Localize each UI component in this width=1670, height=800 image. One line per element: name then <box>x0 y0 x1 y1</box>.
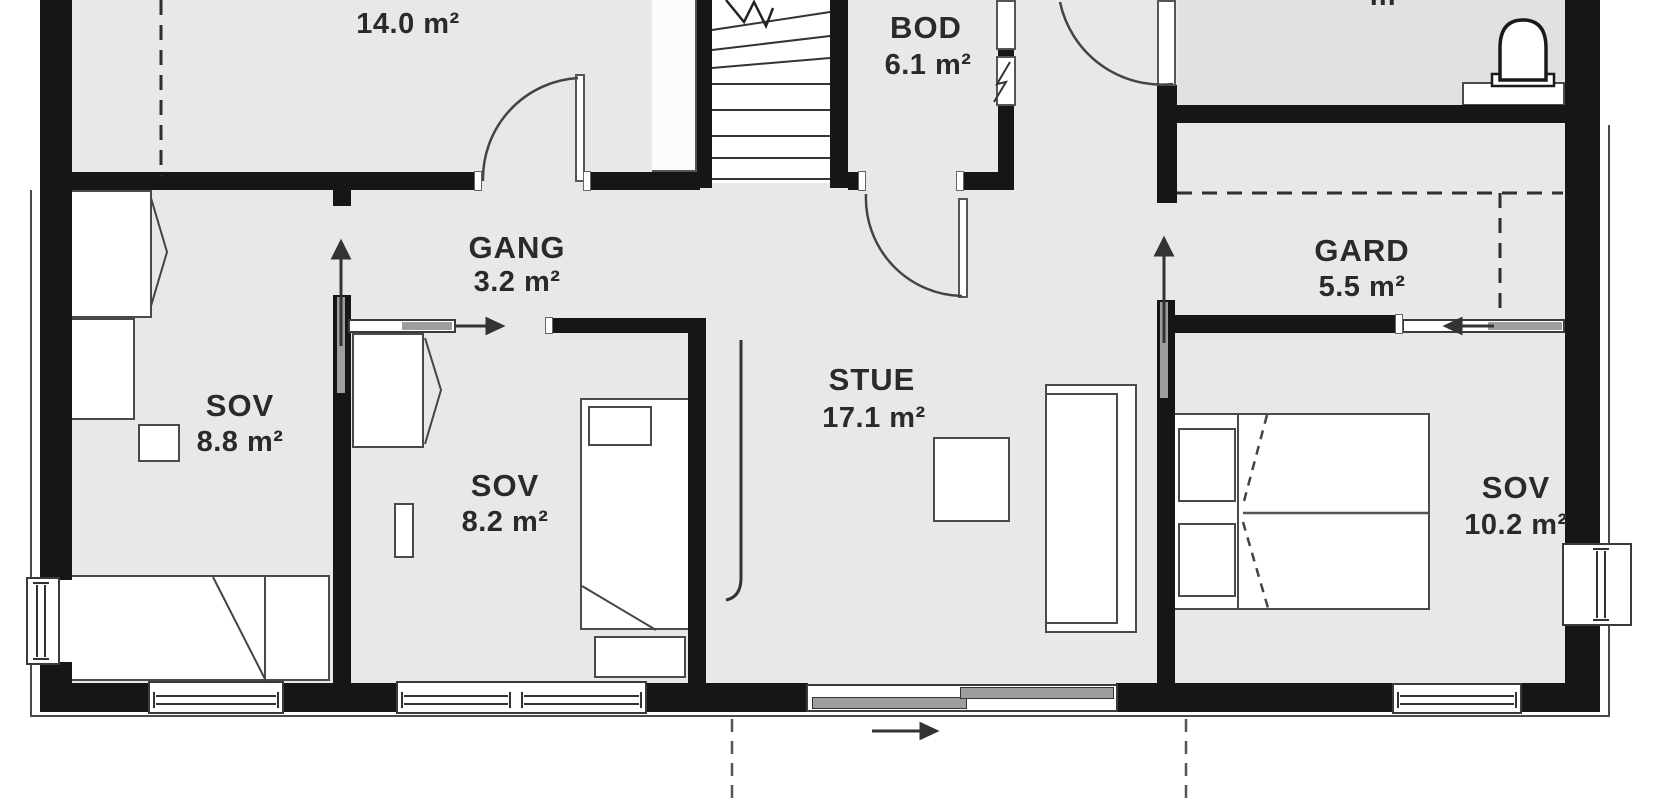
room-label-gard: GARD <box>1314 233 1409 269</box>
pocket-door-sov88-panel <box>337 297 345 393</box>
pillow-sov102-bottom <box>1178 523 1236 597</box>
room-area-gard: 5.5 m² <box>1319 271 1406 304</box>
wall-bath-west <box>1157 85 1177 203</box>
foundation-line-right <box>1608 125 1610 717</box>
bed-sov82-footboard <box>594 636 686 678</box>
bath-counter <box>1462 82 1565 106</box>
outer-wall-bottom-3 <box>643 683 808 712</box>
pocket-door-sov102-panel <box>1160 302 1168 398</box>
jamb-bod61-l <box>858 171 866 191</box>
electrical-panel <box>996 56 1016 106</box>
window-sov82-bottom <box>396 681 647 714</box>
staircase <box>712 0 830 183</box>
slide-arrow-right-terrace-icon <box>872 724 936 738</box>
wall-sov88-stub <box>333 188 351 206</box>
wall-bod14-south-left <box>40 172 480 190</box>
door-leaf-bod61 <box>958 198 968 298</box>
bed-sov88-divider <box>264 577 266 679</box>
window-sov102-bottom <box>1392 683 1522 714</box>
sliding-door-gard-panel <box>1488 322 1562 330</box>
window-sov88-left <box>26 577 60 665</box>
wardrobe-sov88-b <box>70 318 135 420</box>
terrace-door-panel-left <box>812 697 967 709</box>
terrace-door-panel-right <box>960 687 1114 699</box>
door-leaf-bath <box>1157 0 1176 86</box>
outer-wall-bottom-4 <box>1116 683 1395 712</box>
room-area-stue: 17.1 m² <box>822 402 925 435</box>
wardrobe-sov82 <box>352 333 424 448</box>
coffee-table <box>933 437 1010 522</box>
room-area-sov102: 10.2 m² <box>1464 509 1567 542</box>
room-area-sov88: 8.8 m² <box>197 426 284 459</box>
bed-sov102-headboard <box>1237 415 1239 608</box>
foundation-line-bottom <box>30 715 1610 717</box>
wall-bath-south <box>1177 105 1565 123</box>
nightstand-sov88 <box>138 424 180 462</box>
outer-wall-bottom-2 <box>280 683 400 712</box>
outer-wall-bottom-5 <box>1519 683 1600 712</box>
nightstand-sov82 <box>394 503 414 558</box>
room-label-sov82: SOV <box>471 468 539 504</box>
window-sov88-bottom <box>148 681 284 714</box>
room-label-sov88: SOV <box>206 388 274 424</box>
outer-wall-right-upper <box>1565 0 1600 546</box>
room-area-gang: 3.2 m² <box>474 266 561 299</box>
stair-wall-left <box>697 0 712 188</box>
wall-sov82-east <box>688 333 706 683</box>
window-sov102-right <box>1562 543 1632 626</box>
sliding-door-sov82-panel <box>402 322 452 330</box>
room-label-gang: GANG <box>469 230 566 266</box>
bed-sov88 <box>58 575 330 681</box>
outer-wall-left-upper <box>40 0 72 580</box>
outer-wall-bottom-1 <box>40 683 152 712</box>
jamb-bod14-l <box>474 171 482 191</box>
stair-wall-right <box>830 0 848 188</box>
room-area-bad-clipped: m² <box>1370 0 1406 13</box>
stair-landing <box>652 0 697 172</box>
floor-plan: BOD 14.0 m² BOD 6.1 m² m² GANG 3.2 m² GA… <box>0 0 1670 800</box>
jamb-gard <box>1395 314 1403 334</box>
sofa-seat <box>1045 393 1118 624</box>
jamb-sov82 <box>545 317 553 334</box>
wall-sov82-north <box>553 318 706 333</box>
jamb-bod14-r <box>583 171 591 191</box>
wall-gard-south <box>1175 315 1397 333</box>
wall-bod14-south-right <box>585 172 700 190</box>
room-label-bod61: BOD <box>890 10 962 46</box>
pillow-sov102-top <box>1178 428 1236 502</box>
room-label-stue: STUE <box>829 362 916 398</box>
door-leaf-bod14 <box>575 74 585 182</box>
room-label-sov102: SOV <box>1482 470 1550 506</box>
room-label-bod14: BOD <box>372 0 444 6</box>
room-area-bod14: 14.0 m² <box>356 8 459 41</box>
wardrobe-sov88-a <box>70 190 152 318</box>
bod61-wall-door <box>996 0 1016 50</box>
room-area-sov82: 8.2 m² <box>462 506 549 539</box>
jamb-bod61-r <box>956 171 964 191</box>
pillow-sov82 <box>588 406 652 446</box>
room-area-bod61: 6.1 m² <box>885 49 972 82</box>
